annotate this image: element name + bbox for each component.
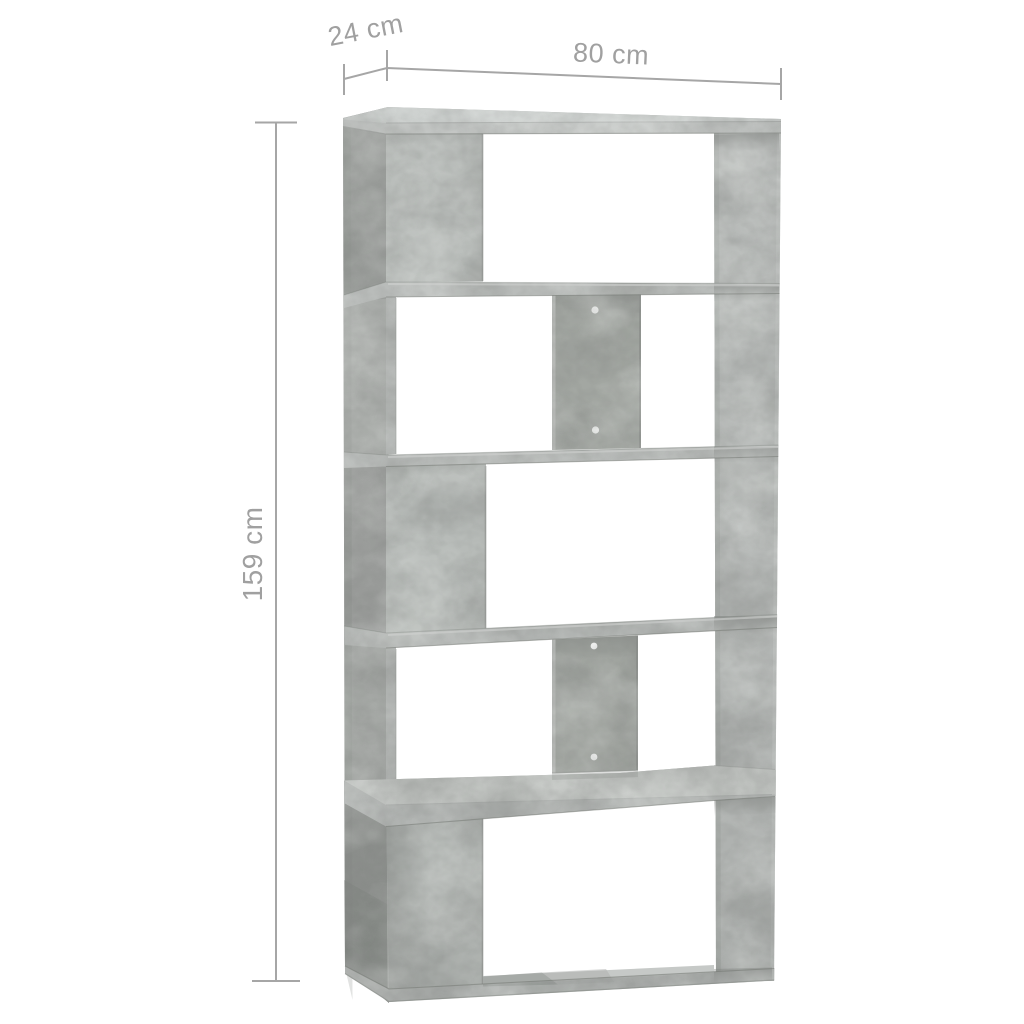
- svg-text:24 cm: 24 cm: [325, 8, 405, 52]
- svg-text:80 cm: 80 cm: [572, 37, 649, 70]
- svg-text:159 cm: 159 cm: [237, 507, 268, 602]
